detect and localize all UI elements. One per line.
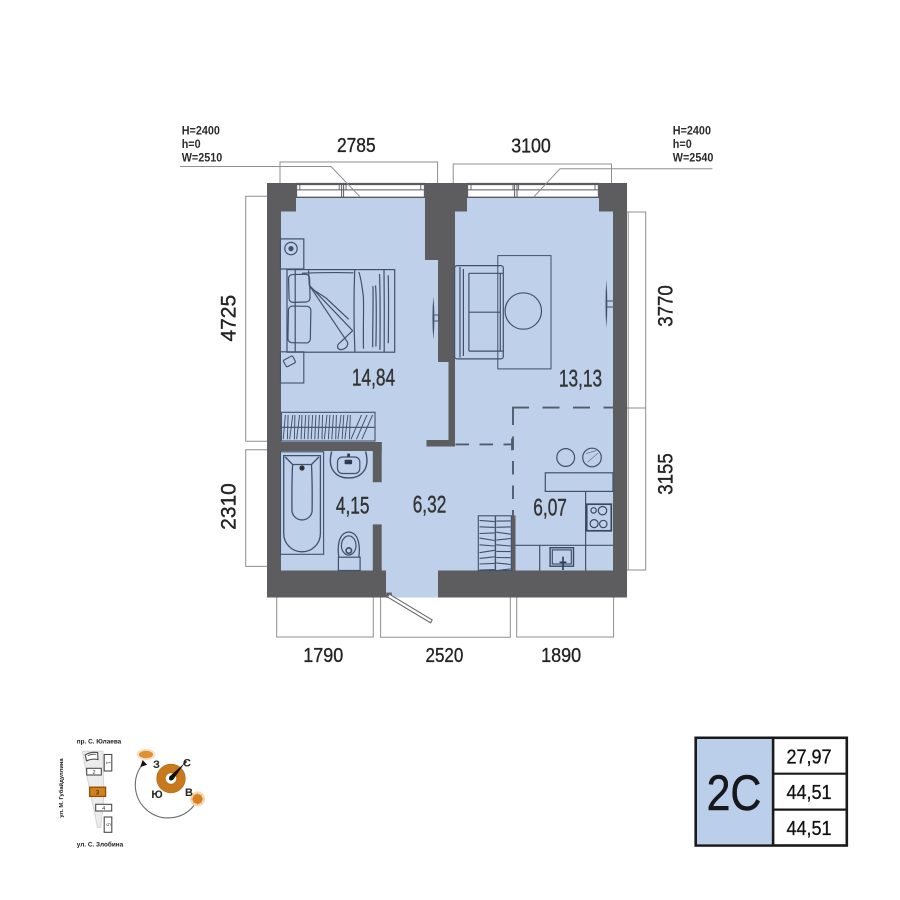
svg-text:44,51: 44,51 [786, 818, 831, 840]
svg-text:1790: 1790 [303, 645, 343, 667]
svg-text:2785: 2785 [337, 134, 376, 156]
svg-text:h=0: h=0 [182, 139, 201, 151]
svg-text:13,13: 13,13 [559, 366, 602, 392]
svg-text:2С: 2С [707, 765, 762, 821]
svg-text:3770: 3770 [655, 285, 678, 327]
svg-text:2520: 2520 [426, 644, 464, 667]
svg-text:ул. С. Злобина: ул. С. Злобина [77, 841, 124, 849]
svg-text:2310: 2310 [218, 483, 241, 530]
svg-text:H=2400: H=2400 [673, 125, 711, 137]
svg-text:14,84: 14,84 [352, 365, 396, 391]
svg-text:4: 4 [102, 806, 105, 812]
svg-text:6,07: 6,07 [533, 495, 567, 521]
svg-text:h=0: h=0 [673, 139, 692, 151]
svg-text:3155: 3155 [655, 453, 678, 495]
svg-text:4,15: 4,15 [336, 493, 370, 519]
svg-text:2: 2 [92, 770, 95, 776]
svg-text:5: 5 [104, 823, 110, 826]
svg-text:27,97: 27,97 [786, 746, 831, 768]
svg-text:пр. С. Юлаева: пр. С. Юлаева [77, 739, 122, 746]
svg-text:З: З [153, 759, 160, 771]
svg-text:ул. М. Губайдуллина: ул. М. Губайдуллина [58, 758, 65, 818]
svg-text:44,51: 44,51 [786, 782, 831, 804]
svg-text:3100: 3100 [511, 136, 551, 158]
svg-text:6,32: 6,32 [413, 492, 447, 518]
svg-text:С: С [183, 758, 191, 770]
svg-text:W=2510: W=2510 [182, 152, 223, 164]
svg-text:1: 1 [104, 761, 110, 764]
svg-text:Ю: Ю [151, 789, 162, 801]
svg-text:W=2540: W=2540 [673, 152, 714, 164]
svg-text:1890: 1890 [541, 645, 581, 667]
svg-text:H=2400: H=2400 [182, 125, 220, 137]
svg-text:4725: 4725 [218, 295, 241, 342]
